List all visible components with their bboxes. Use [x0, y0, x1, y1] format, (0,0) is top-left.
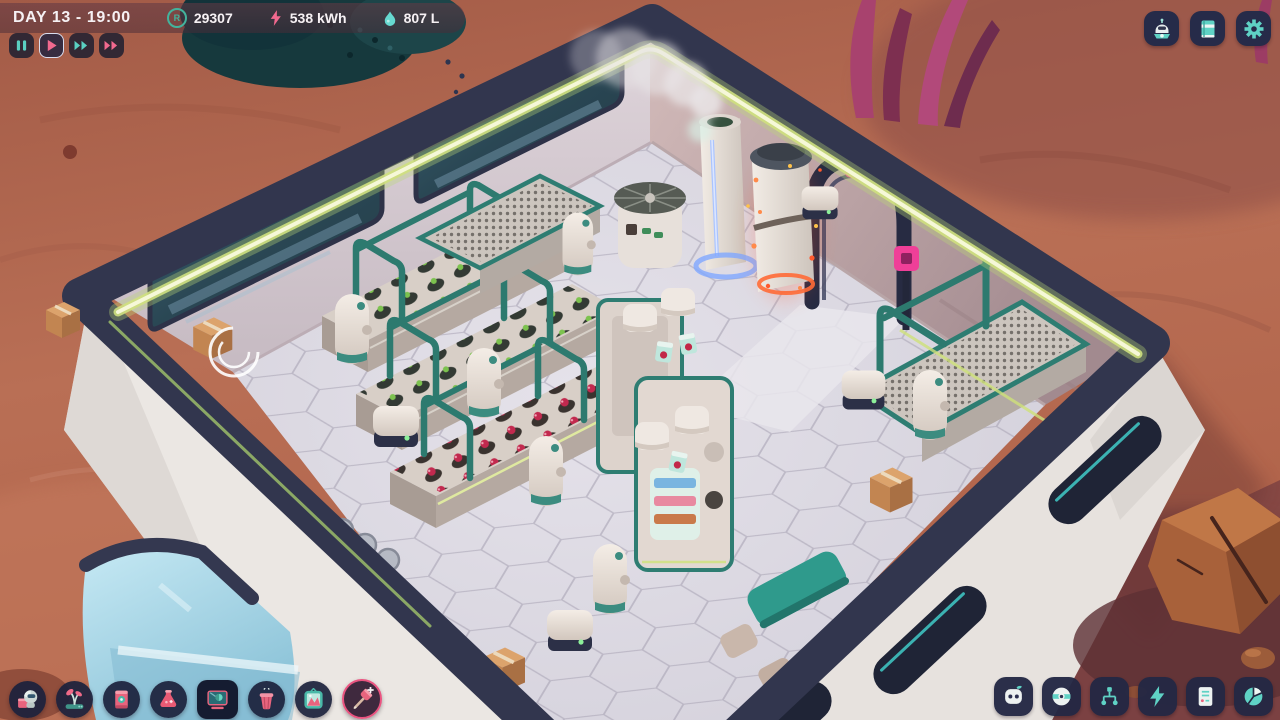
pause-button[interactable] — [9, 33, 34, 58]
pots-button[interactable] — [248, 681, 285, 718]
materials-button[interactable] — [103, 681, 140, 718]
monitors-button[interactable] — [197, 680, 238, 719]
game-screen: DAY 13 - 19:00 R 29307 538 kWh 807 L — [0, 0, 1280, 720]
energy-indicator: 538 kWh — [269, 10, 347, 26]
vent-machine[interactable] — [614, 182, 686, 268]
picture-frame-icon — [302, 688, 325, 711]
clock: DAY 13 - 19:00 — [13, 9, 131, 27]
ultra-fast-forward-button[interactable] — [99, 33, 124, 58]
robots-button[interactable] — [994, 677, 1033, 716]
gear-icon — [1243, 18, 1265, 40]
fast-forward-button[interactable] — [69, 33, 94, 58]
pie-chart-icon — [1242, 685, 1265, 708]
credits-icon: R — [167, 8, 187, 28]
settings-button[interactable] — [1236, 11, 1271, 46]
pause-icon — [15, 39, 28, 52]
lightning-icon — [1146, 685, 1169, 708]
status-bar: DAY 13 - 19:00 R 29307 538 kWh 807 L — [0, 3, 465, 33]
drone-icon — [1050, 685, 1073, 708]
screen-icon — [205, 688, 230, 711]
build-button[interactable] — [342, 679, 382, 719]
canister-icon — [110, 688, 133, 711]
hammer-plus-icon — [350, 687, 374, 711]
system-buttons — [1144, 11, 1271, 46]
drones-button[interactable] — [1042, 677, 1081, 716]
plants-button[interactable] — [56, 681, 93, 718]
energy-bolt-icon — [269, 10, 283, 26]
time-controls — [9, 33, 124, 58]
management-toolbar — [994, 677, 1273, 716]
build-toolbar — [9, 679, 382, 719]
flask-icon — [157, 688, 180, 711]
fast-forward-icon — [74, 39, 89, 52]
ultra-fast-forward-icon — [104, 39, 119, 52]
credits-value: 29307 — [194, 10, 233, 26]
play-icon — [45, 39, 58, 52]
logistics-button[interactable] — [1090, 677, 1129, 716]
decorations-button[interactable] — [295, 681, 332, 718]
machines-button[interactable] — [9, 681, 46, 718]
network-icon — [1098, 685, 1121, 708]
game-viewport[interactable] — [0, 0, 1280, 720]
credits-indicator: R 29307 — [167, 8, 233, 28]
robot-box-icon — [16, 688, 39, 711]
robot-assistant-icon — [1151, 18, 1173, 40]
robot-face-icon — [1002, 685, 1025, 708]
statistics-button[interactable] — [1234, 677, 1273, 716]
document-icon — [1194, 685, 1217, 708]
journal-button[interactable] — [1190, 11, 1225, 46]
water-value: 807 L — [404, 10, 440, 26]
book-icon — [1197, 18, 1219, 40]
power-button[interactable] — [1138, 677, 1177, 716]
water-drop-icon — [383, 10, 397, 27]
assistant-button[interactable] — [1144, 11, 1179, 46]
water-indicator: 807 L — [383, 10, 440, 27]
energy-value: 538 kWh — [290, 10, 347, 26]
sprout-icon — [63, 688, 86, 711]
pot-icon — [255, 688, 278, 711]
research-button[interactable] — [150, 681, 187, 718]
reports-button[interactable] — [1186, 677, 1225, 716]
play-button[interactable] — [39, 33, 64, 58]
